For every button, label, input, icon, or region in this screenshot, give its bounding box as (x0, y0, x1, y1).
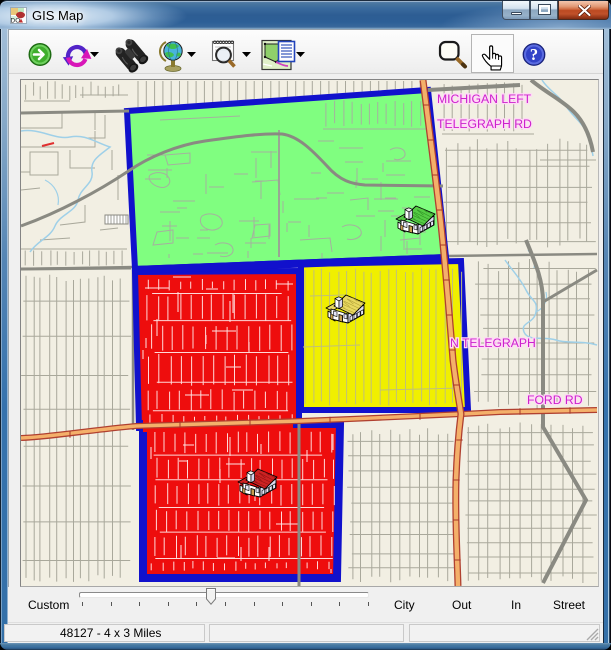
svg-text:N TELEGRAPH: N TELEGRAPH (450, 336, 536, 350)
svg-text:?: ? (530, 45, 538, 64)
svg-text:TELEGRAPH RD: TELEGRAPH RD (437, 117, 532, 131)
svg-text:FORD RD: FORD RD (527, 393, 583, 407)
svg-text:MICHIGAN LEFT: MICHIGAN LEFT (437, 92, 532, 106)
